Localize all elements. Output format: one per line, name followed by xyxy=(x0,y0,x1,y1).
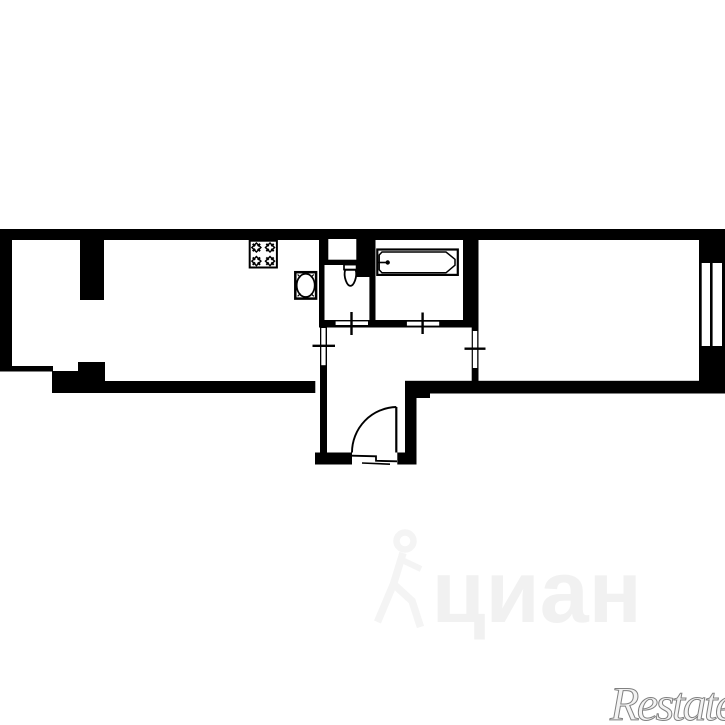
svg-text:Restate: Restate xyxy=(609,678,725,725)
svg-text:циан: циан xyxy=(432,542,642,641)
